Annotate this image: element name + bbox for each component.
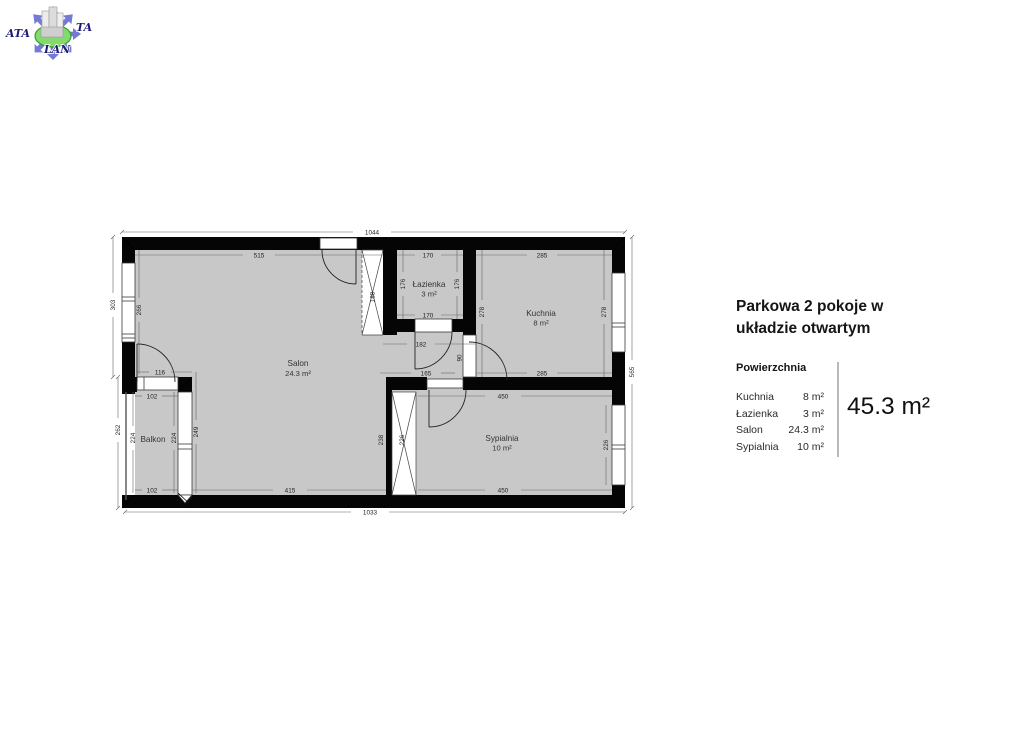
salon-window [122,263,135,342]
legend-header: Powierzchnia [736,362,824,374]
dim-label: 285 [537,370,548,377]
balcony-door-opening [137,377,178,390]
logo-text-bottom: LAN [43,43,71,56]
dim-label: 102 [147,487,158,494]
kitchen-door-opening [463,335,476,377]
dim-label: 450 [498,487,509,494]
dim-label: 90 [457,354,464,362]
area-row-value: 10 m² [797,441,824,454]
area-row-label: Sypialnia [736,441,779,454]
area-row: Salon 24.3 m² [736,424,824,437]
dim-label: 262 [115,424,122,435]
dim-label: 188 [370,291,377,302]
dim-label: 238 [378,434,385,445]
dim-label: 170 [423,252,434,259]
bedroom-door-opening [427,379,463,388]
dim-label: 1033 [363,509,378,516]
logo-buildings-icon [41,7,63,37]
room-area-kuchnia: 8 m² [533,319,549,328]
room-area-salon: 24.3 m² [285,369,311,378]
dim-label: 182 [416,341,427,348]
area-row-value: 24.3 m² [788,424,824,437]
area-row: Sypialnia 10 m² [736,441,824,454]
area-row-label: Kuchnia [736,391,774,404]
area-row: Łazienka 3 m² [736,408,824,421]
dim-label: 266 [136,304,143,315]
logo-text-left: ATA [5,27,31,40]
dim-label: 224 [171,432,178,443]
watermark-logo: ATA TA LAN [0,3,110,63]
entry-door-opening [320,238,357,249]
room-label-sypialnia: Sypialnia [485,434,519,443]
room-area-sypialnia: 10 m² [492,444,512,453]
dim-label: 278 [601,306,608,317]
dim-label: 303 [110,299,117,310]
area-legend: Powierzchnia Kuchnia 8 m² Łazienka 3 m² … [736,362,824,458]
dim-label: 226 [603,439,610,450]
vertical-divider [837,362,839,458]
dim-label: 170 [423,312,434,319]
total-area: 45.3 m² [847,362,930,458]
area-row-label: Łazienka [736,408,778,421]
room-label-balkon: Balkon [140,435,165,444]
area-row-value: 3 m² [803,408,824,421]
dim-label: 415 [285,487,296,494]
room-label-kuchnia: Kuchnia [526,309,556,318]
area-row: Kuchnia 8 m² [736,391,824,404]
area-row-label: Salon [736,424,763,437]
dim-label: 116 [155,369,166,376]
logo-text-right: TA [76,21,93,34]
room-area-lazienka: 3 m² [421,290,437,299]
dim-label: 226 [399,434,406,445]
dim-label: 515 [254,252,265,259]
room-label-salon: Salon [288,359,309,368]
balcony-glass-wall [178,392,192,495]
dim-label: 176 [454,278,461,289]
room-label-lazienka: Łazienka [413,280,446,289]
dim-label: 450 [498,393,509,400]
page-title: Parkowa 2 pokoje w układzie otwartym [736,296,931,341]
info-panel: Parkowa 2 pokoje w układzie otwartym Pow… [736,296,1006,457]
floor-plan: 1044 1033 515 170 285 170 182 116 165 28… [108,222,648,522]
area-row-value: 8 m² [803,391,824,404]
dim-label: 224 [130,432,137,443]
dim-label: 102 [147,393,158,400]
dim-label: 249 [193,426,200,437]
dim-label: 285 [537,252,548,259]
kitchen-window [612,273,625,352]
dim-label: 565 [629,366,636,377]
dim-label: 176 [400,278,407,289]
area-summary: Powierzchnia Kuchnia 8 m² Łazienka 3 m² … [736,362,1006,458]
dim-label: 1044 [365,229,380,236]
dim-label: 278 [479,306,486,317]
bathroom-door-opening [415,319,452,332]
dim-label: 165 [421,370,432,377]
